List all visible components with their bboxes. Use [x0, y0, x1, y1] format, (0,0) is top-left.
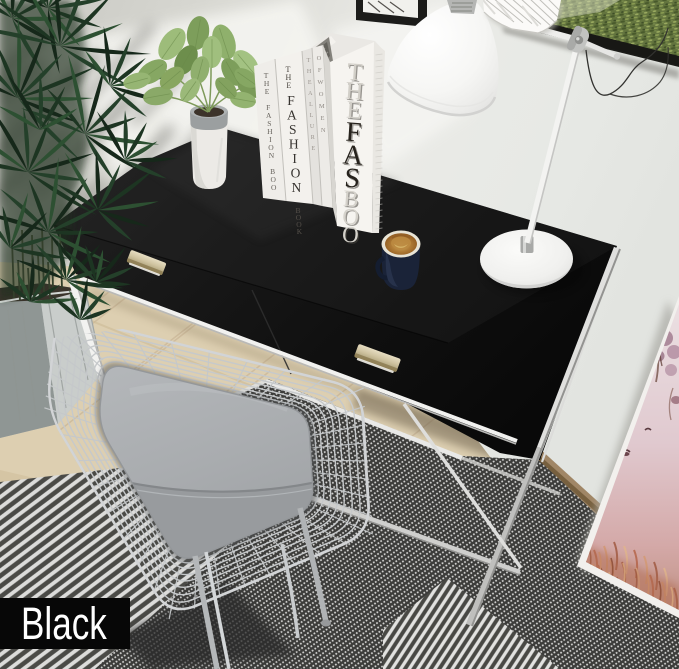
svg-text:W: W: [317, 79, 324, 86]
svg-text:E: E: [265, 87, 270, 96]
svg-text:O: O: [341, 222, 359, 248]
svg-text:O: O: [271, 183, 277, 192]
svg-text:A: A: [308, 91, 313, 97]
svg-text:S: S: [289, 122, 297, 137]
svg-text:O: O: [317, 55, 322, 62]
svg-text:E: E: [286, 81, 291, 90]
svg-text:E: E: [321, 115, 325, 122]
svg-text:E: E: [308, 80, 312, 86]
svg-text:A: A: [287, 108, 297, 123]
svg-text:T: T: [307, 58, 311, 64]
svg-text:N: N: [292, 180, 302, 195]
svg-text:L: L: [309, 102, 313, 108]
svg-text:I: I: [292, 151, 297, 166]
svg-text:Black: Black: [21, 598, 108, 649]
svg-text:O: O: [291, 166, 301, 181]
svg-text:H: H: [289, 137, 299, 152]
svg-text:N: N: [321, 127, 326, 134]
svg-text:F: F: [287, 93, 295, 108]
svg-text:U: U: [310, 124, 315, 130]
svg-text:H: H: [307, 69, 312, 75]
svg-text:M: M: [319, 103, 325, 110]
svg-text:K: K: [297, 227, 303, 236]
svg-text:L: L: [310, 113, 314, 119]
svg-text:N: N: [269, 151, 275, 160]
svg-text:F: F: [318, 67, 322, 74]
svg-text:R: R: [311, 135, 315, 141]
svg-text:E: E: [311, 146, 315, 152]
svg-text:O: O: [319, 91, 324, 98]
